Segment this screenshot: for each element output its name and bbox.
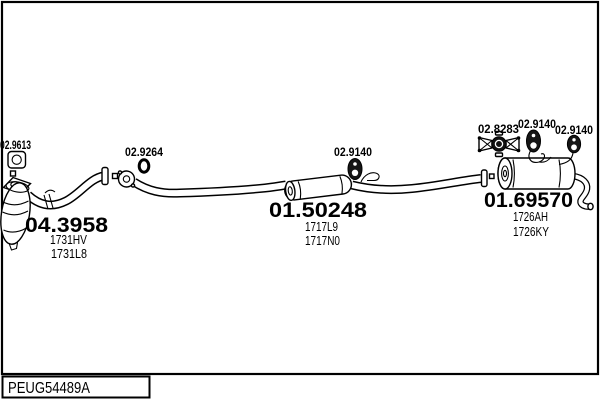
rear-silencer-code-2: 1726KY: [513, 225, 550, 239]
gasket-part-label: 02.9613: [0, 138, 31, 152]
catalyst-code-2: 1731L8: [51, 247, 87, 261]
bracket-part-label: 02.8283: [478, 122, 519, 136]
rear-joint-flange-plate: [482, 170, 488, 187]
rear-hanger1-part-label: 02.9140: [518, 117, 556, 131]
rear-hanger2-part-label: 02.9140: [555, 123, 593, 137]
tailpipe-tip: [588, 203, 593, 209]
centre-hanger-part-label: 02.9140: [334, 145, 372, 159]
rear-silencer-part-number: 01.69570: [484, 189, 573, 212]
centre-silencer-code-2: 1717N0: [305, 234, 340, 248]
catalog-code-box: PEUG54489A: [3, 377, 150, 398]
catalyst-code-1: 1731HV: [50, 233, 88, 247]
exhaust-parts-diagram: 02.9613 02.9264 02.9140 02.8283 02.9140 …: [0, 0, 600, 400]
rear-joint-gasket-dot: [490, 174, 495, 179]
rear-silencer-code-1: 1726AH: [513, 210, 548, 224]
joint-flange-plate: [102, 168, 108, 185]
centre-silencer-code-1: 1717L9: [305, 220, 338, 234]
rubber-hanger-icon-centre: [348, 159, 362, 180]
catalog-code: PEUG54489A: [8, 380, 91, 397]
rear-silencer-end-cap: [498, 158, 512, 189]
centre-silencer-part-number: 01.50248: [269, 199, 367, 222]
clamp-part-label: 02.9264: [125, 145, 163, 159]
rubber-hanger-icon-rear2: [567, 135, 580, 153]
rubber-hanger-icon-rear1: [527, 130, 541, 152]
joint-gasket-dot: [113, 174, 118, 179]
